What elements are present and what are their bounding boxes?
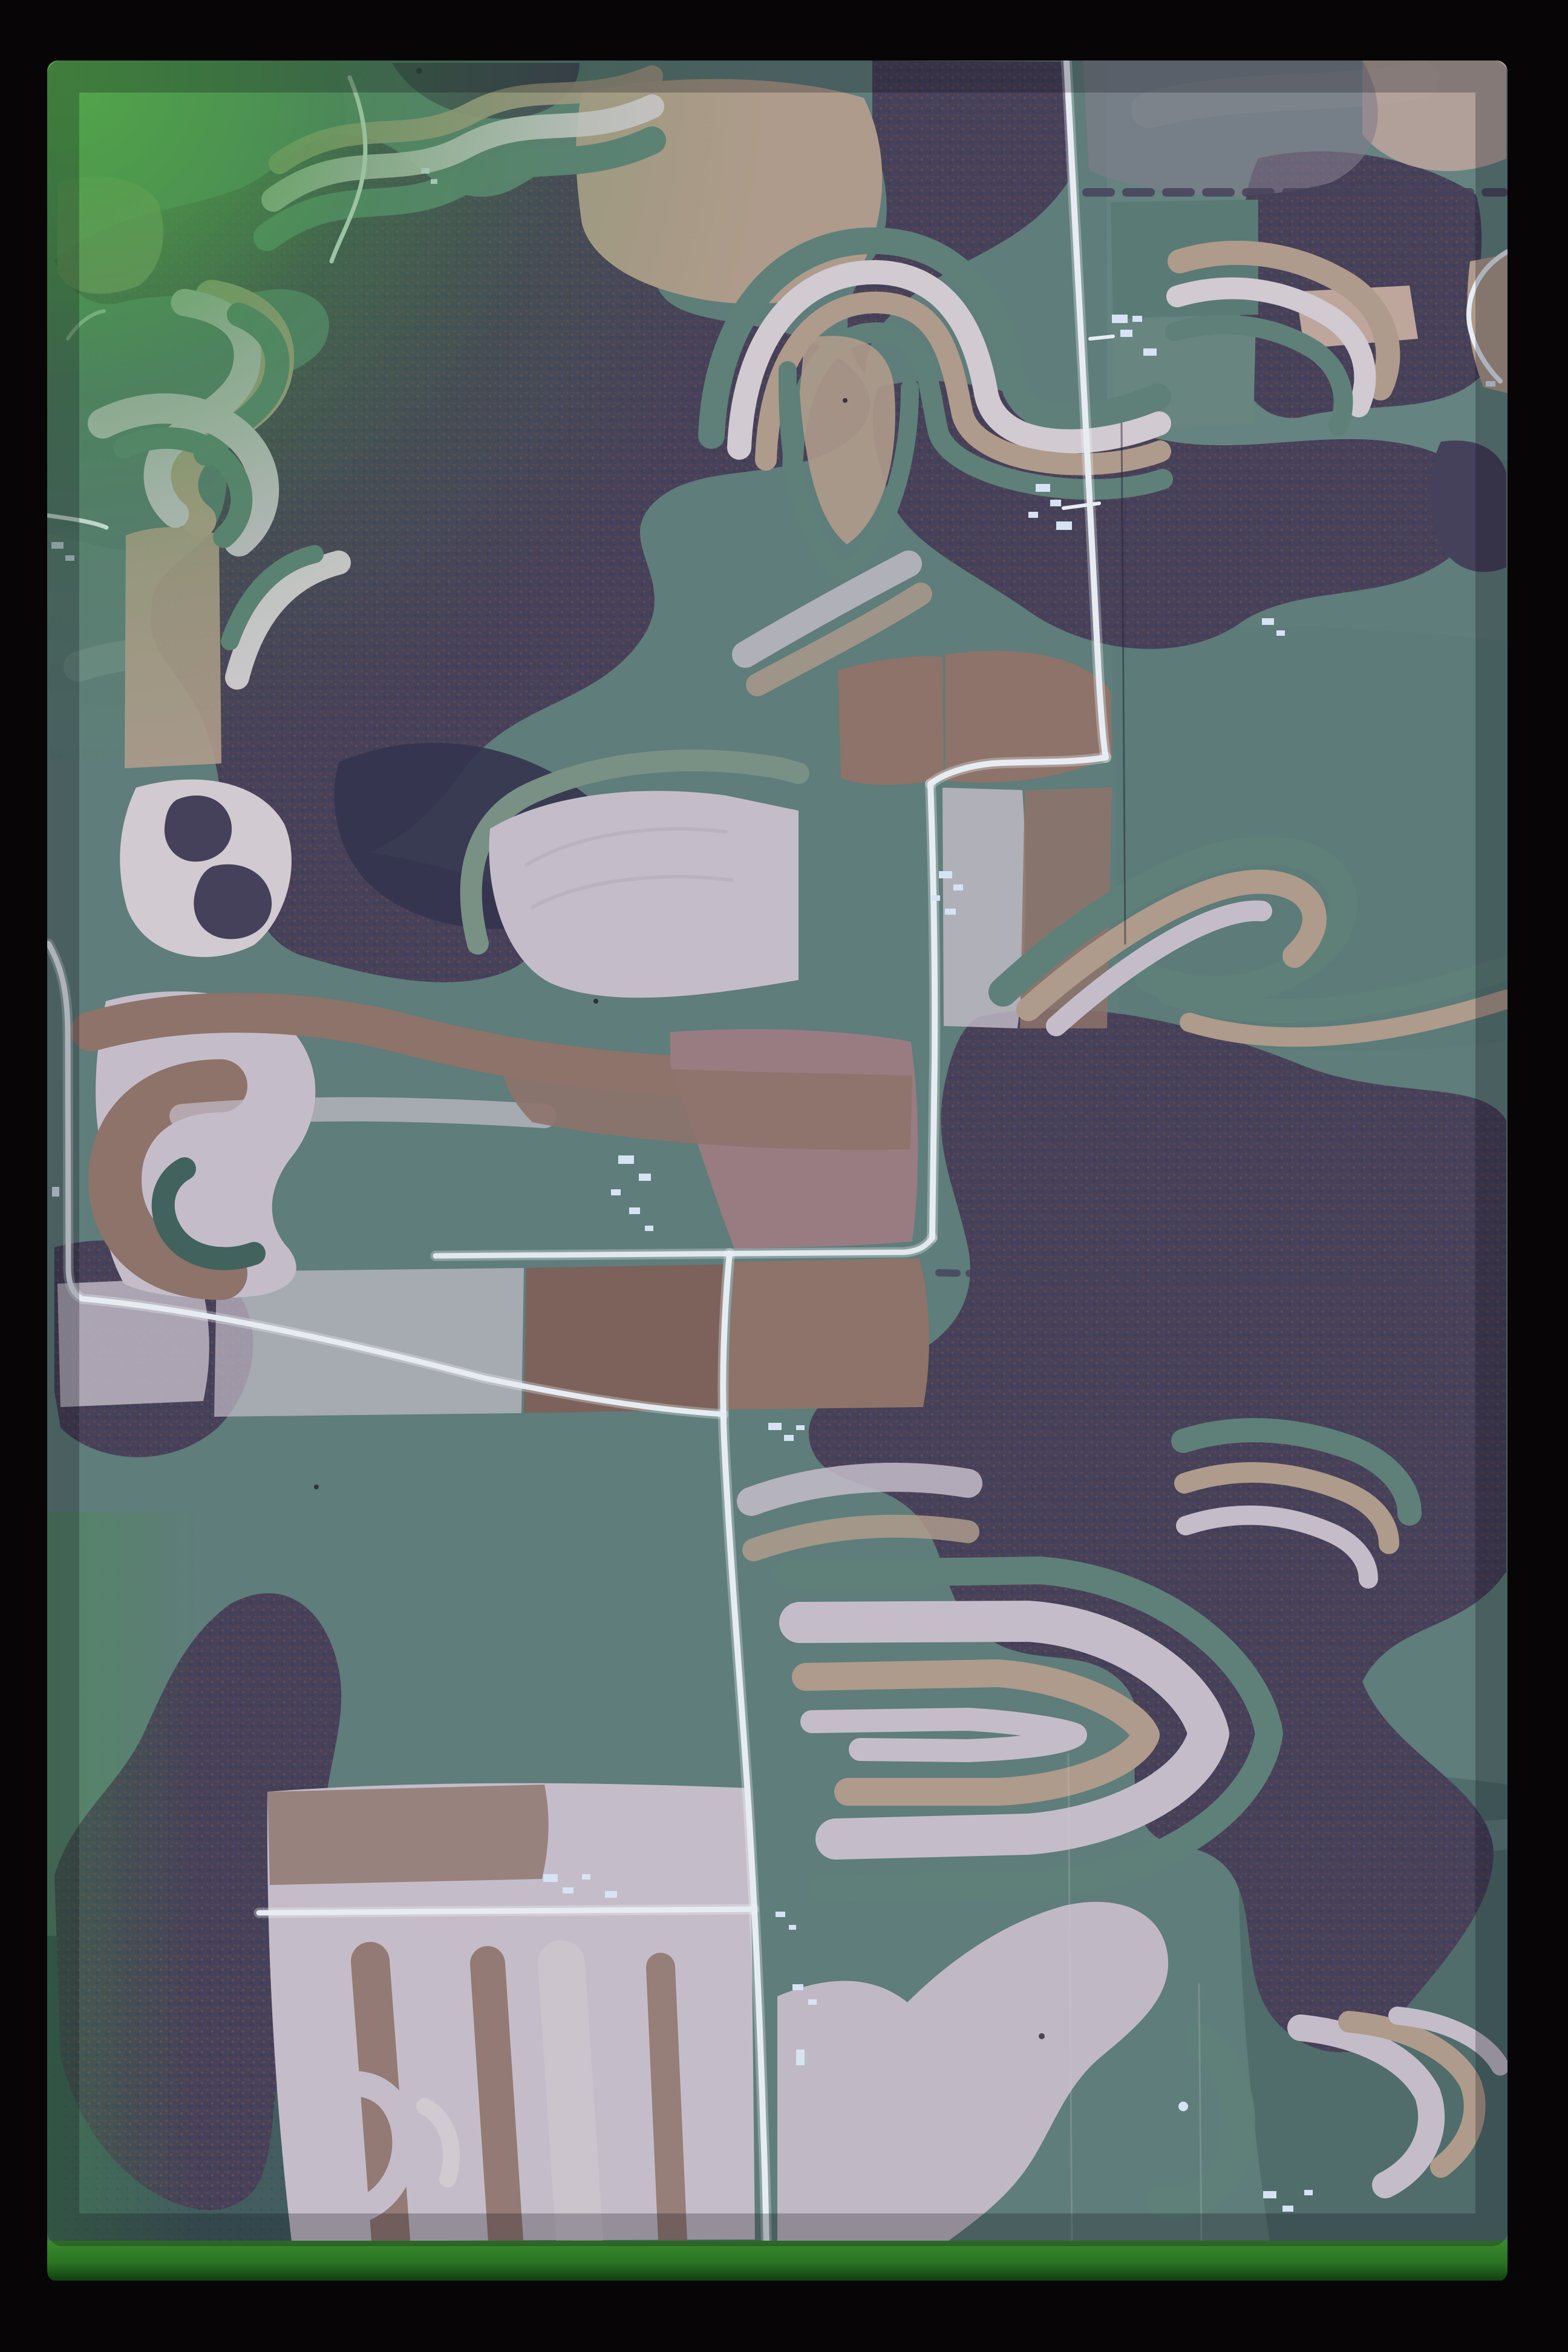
terrain-feature-layer: [0, 0, 1508, 2281]
aerial-photo-slide-scan: [0, 0, 1568, 2352]
slide-scan-stage: [0, 0, 1568, 2352]
film-green-bottom-band: [47, 2241, 1508, 2281]
photo-area: [0, 0, 1508, 2281]
